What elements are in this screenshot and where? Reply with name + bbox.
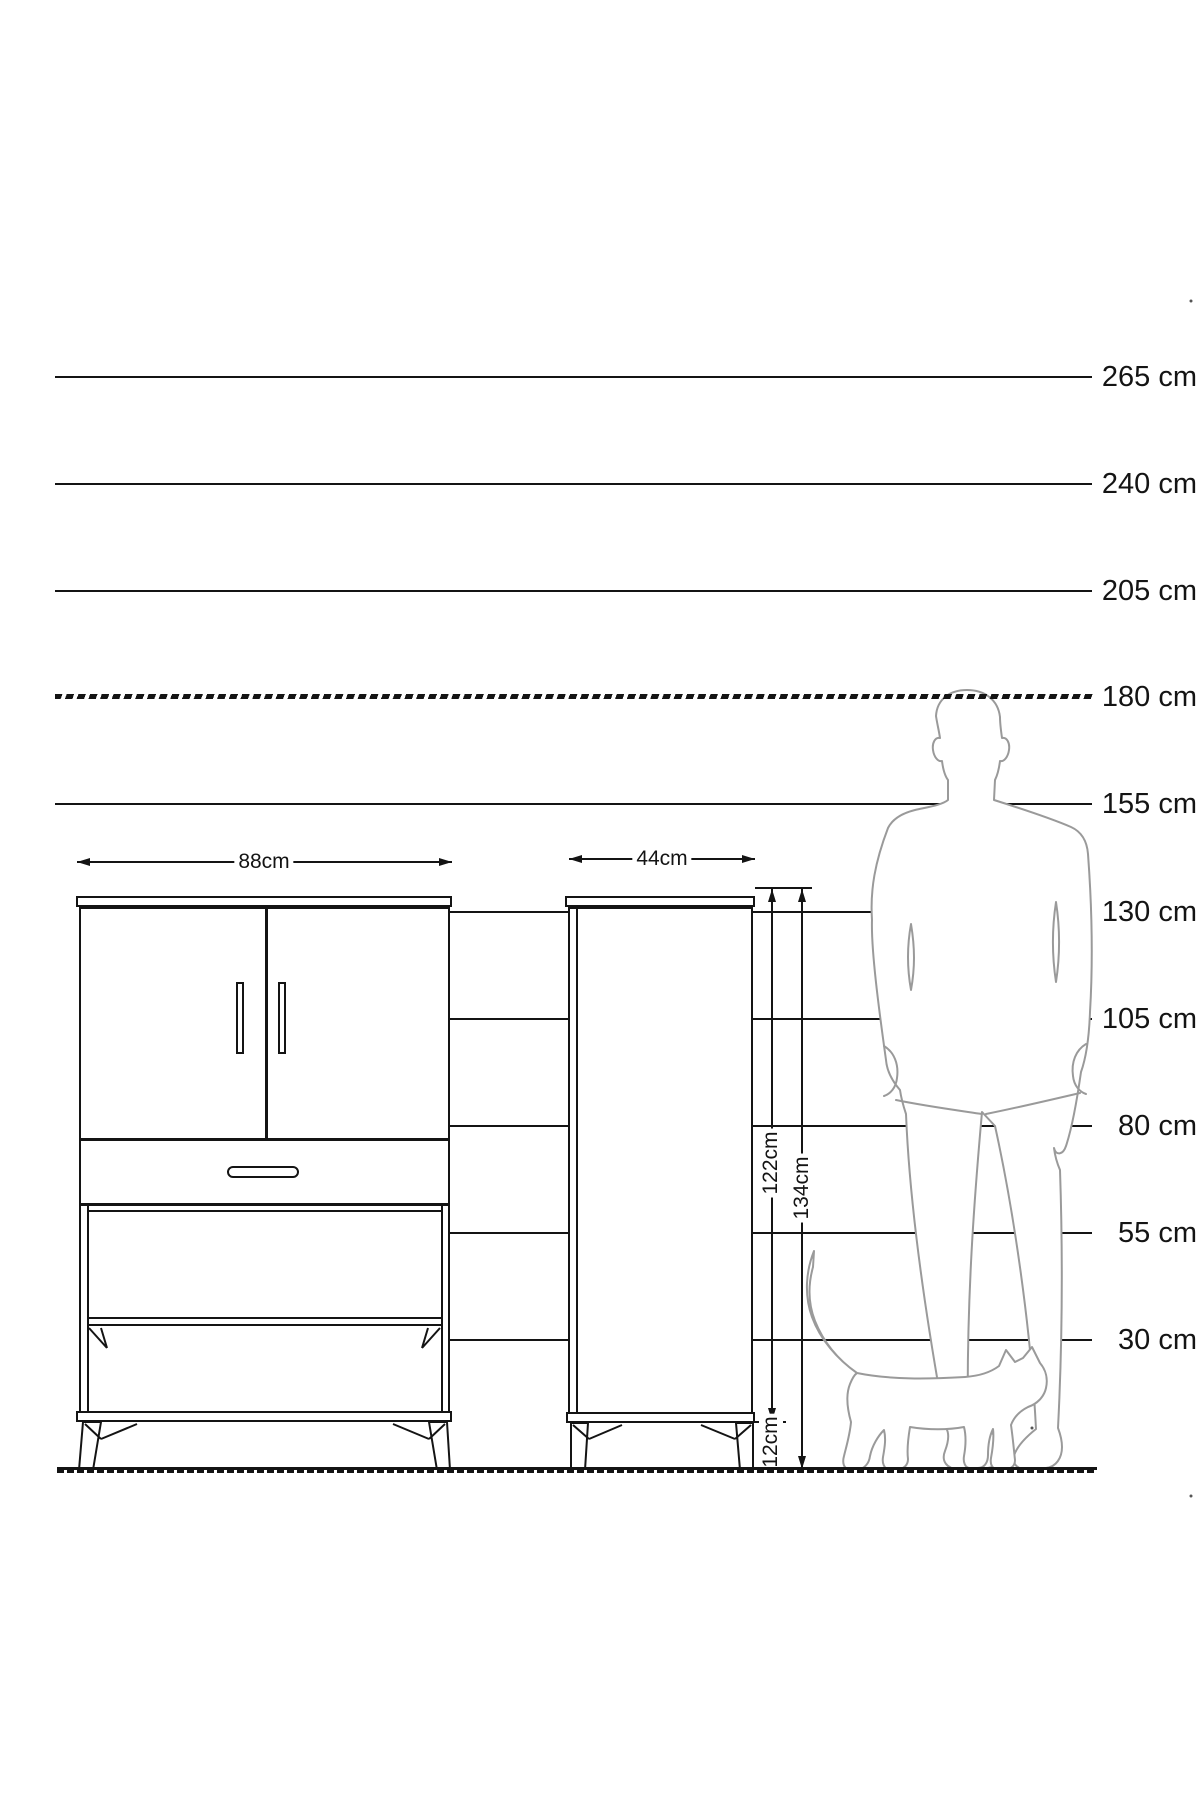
dimension-label-122cm: 122cm (759, 1128, 783, 1197)
figures-and-details-layer (0, 0, 1200, 1800)
dimension-label-134cm: 134cm (790, 1153, 814, 1222)
shelf-corner-braces (89, 1328, 440, 1348)
speck-top-right (1190, 300, 1193, 303)
height-line-180-dashed (55, 694, 1095, 699)
man-silhouette (872, 690, 1092, 1469)
ground-line-hatch (57, 1470, 1097, 1473)
dimension-label-44cm: 44cm (632, 847, 691, 871)
man-left-arm-slit (908, 924, 914, 990)
man-figure (872, 690, 1092, 1469)
man-right-arm-slit (1053, 902, 1059, 982)
shelf-brace-right (422, 1328, 440, 1348)
dimension-label-88cm: 88cm (234, 850, 293, 874)
cabinet-legs (79, 1422, 753, 1470)
speck-bottom-right (1190, 1495, 1193, 1498)
speck-near-shoe (1031, 1427, 1034, 1430)
furniture-dimension-diagram: 265 cm 240 cm 205 cm 180 cm 155 cm 130 c… (0, 0, 1200, 1800)
dimension-arrowheads (77, 855, 806, 1469)
shelf-brace-left (89, 1328, 107, 1348)
dimension-label-12cm: 12cm (759, 1413, 783, 1470)
dimension-extension-top (755, 887, 812, 889)
